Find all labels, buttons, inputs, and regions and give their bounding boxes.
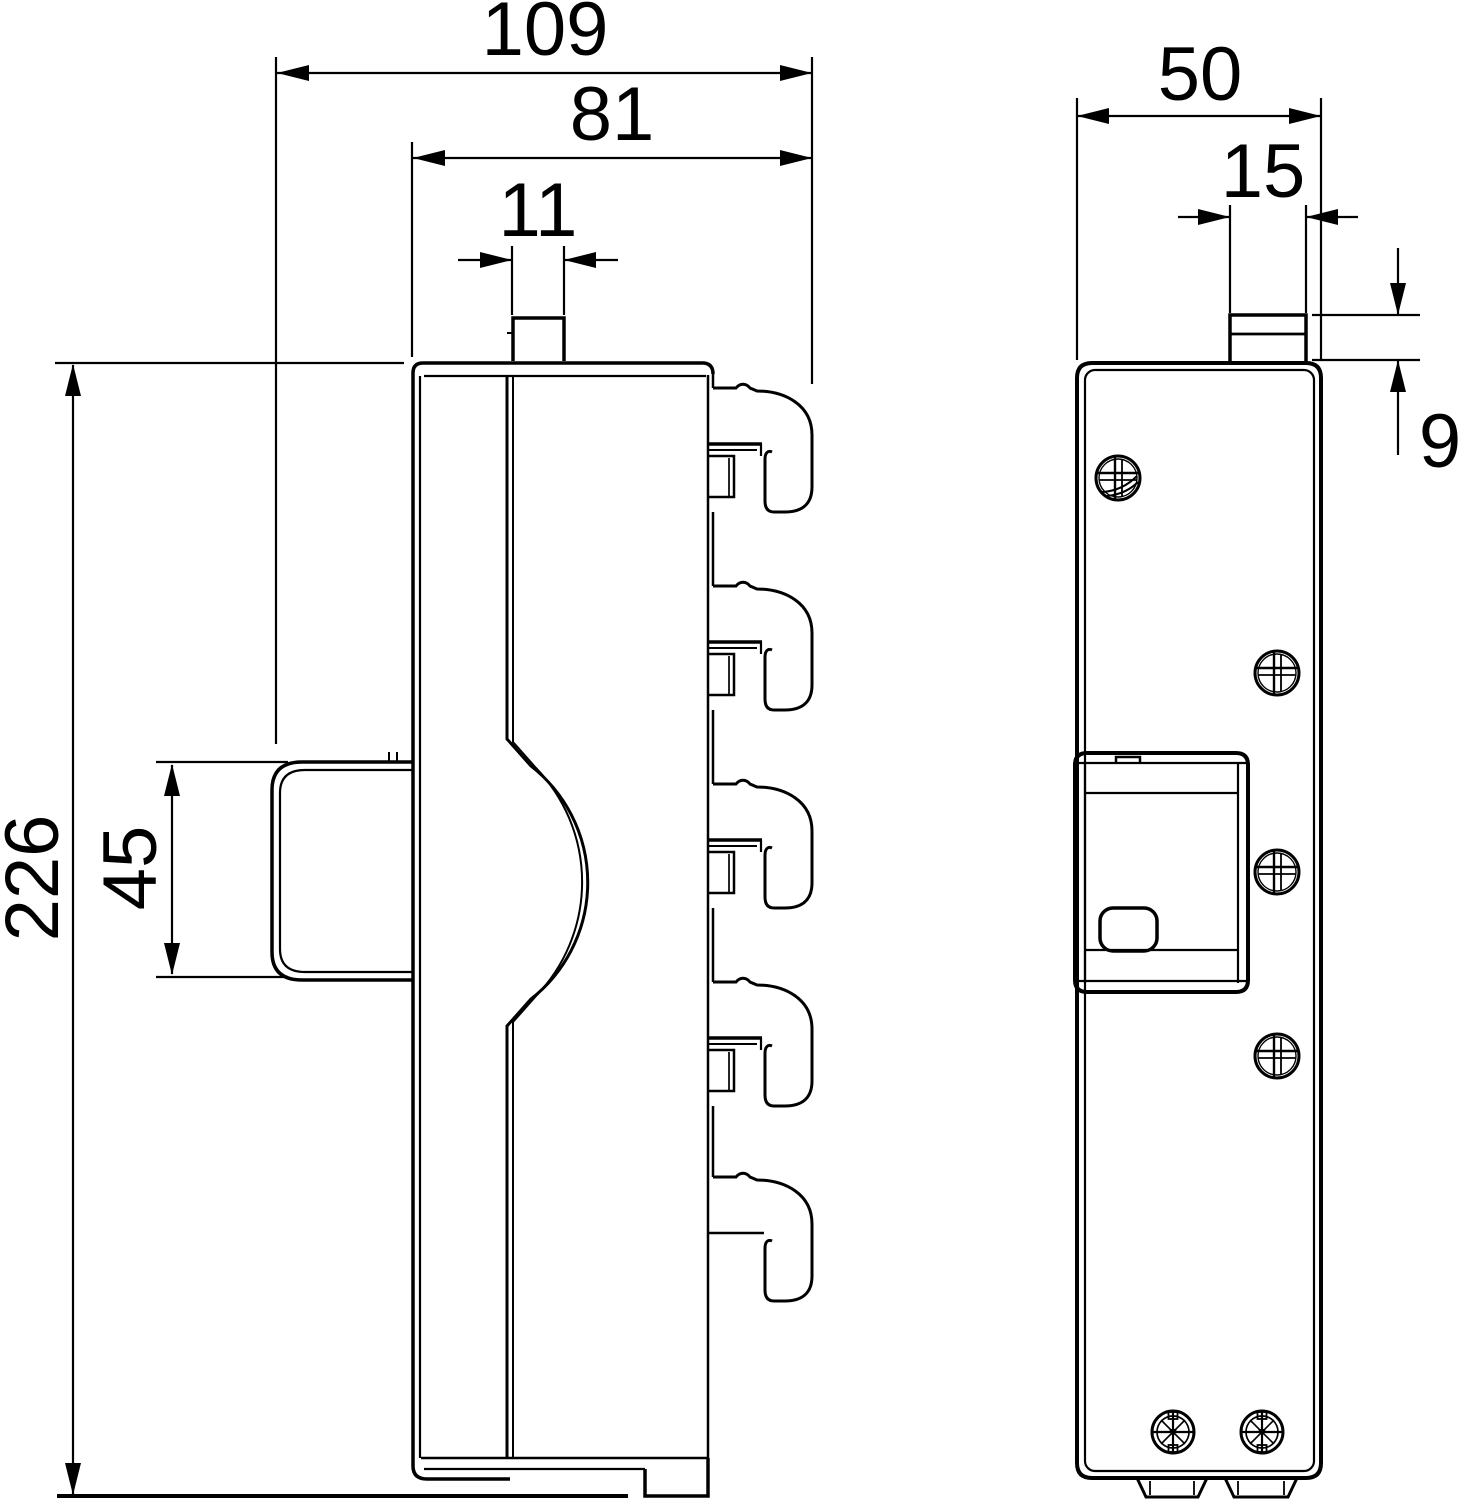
bottom-feet-front (1137, 1478, 1297, 1497)
dimension-overall-height-label: 226 (0, 815, 75, 942)
screw-right-2 (1255, 850, 1299, 894)
dimensions: 109 81 11 226 45 50 (0, 0, 1458, 1495)
dimension-top-tab-front-label: 15 (1221, 129, 1306, 214)
rail-hook-2 (708, 582, 812, 710)
latch-box (1075, 753, 1248, 992)
screw-right-1 (1255, 651, 1299, 695)
handle-outline (272, 762, 413, 980)
body-front-edge (507, 376, 588, 1458)
front-body-inner-line (1085, 370, 1314, 1471)
faceplate-outline (413, 363, 510, 1479)
dimension-top-tab-height: 9 (1312, 248, 1458, 484)
dimension-overall-width: 109 (276, 0, 812, 744)
rail-hook-4 (708, 978, 812, 1106)
rail-hook-5 (708, 1173, 812, 1301)
top-tab-front (1230, 315, 1306, 361)
top-tab-side (513, 318, 564, 361)
dimension-body-width-label: 81 (570, 72, 655, 157)
dimension-top-tab-height-label: 9 (1419, 399, 1458, 484)
handle-inner-line (280, 770, 413, 972)
dimension-handle-height: 45 (88, 762, 288, 977)
dimension-top-tab-side-label: 11 (499, 168, 578, 253)
screw-bottom-right (1241, 1411, 1283, 1453)
technical-drawing: 109 81 11 226 45 50 (0, 0, 1458, 1500)
latch-opening (1100, 908, 1157, 951)
dimension-front-width-label: 50 (1158, 32, 1243, 117)
screw-top-left (1096, 456, 1140, 500)
front-view (1075, 315, 1321, 1497)
dimension-top-tab-front: 15 (1178, 129, 1358, 313)
dimension-overall-height: 226 (0, 363, 404, 1495)
rail-hook-3 (708, 780, 812, 908)
front-body-outline (1077, 363, 1321, 1478)
bottom-foot-side (645, 1458, 708, 1496)
dimension-body-width: 81 (412, 72, 812, 357)
top-edge-outer (423, 363, 713, 374)
dimension-handle-height-label: 45 (88, 826, 173, 911)
screw-right-3 (1255, 1034, 1299, 1078)
screw-bottom-left (1152, 1411, 1194, 1453)
dimension-overall-width-label: 109 (482, 0, 609, 72)
dimension-top-tab-side: 11 (458, 168, 618, 315)
rail-hook-1 (708, 384, 812, 512)
drawing-canvas: 109 81 11 226 45 50 (0, 0, 1458, 1500)
body-front-edge-inner (513, 376, 582, 1458)
